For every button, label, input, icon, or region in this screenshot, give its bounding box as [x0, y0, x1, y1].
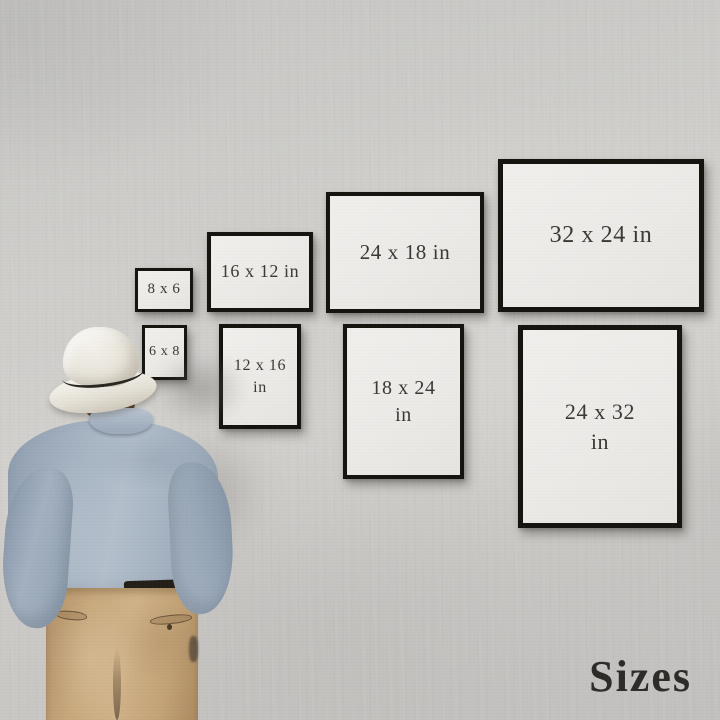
frame-label: 12 x 16 in — [234, 355, 286, 397]
frame-8x6: 8 x 6 — [135, 268, 193, 312]
frame-label-line: 8 x 6 — [148, 280, 181, 300]
frame-label: 32 x 24 in — [550, 220, 653, 252]
frame-label-line: 32 x 24 in — [550, 220, 653, 252]
frame-label-line: 24 x 18 in — [360, 239, 451, 267]
frame-6x8: 6 x 8 — [142, 325, 187, 380]
frame-label: 16 x 12 in — [221, 260, 300, 284]
frame-16x12: 16 x 12 in — [207, 232, 313, 312]
frame-18x24: 18 x 24 in — [343, 324, 464, 479]
frame-label: 18 x 24 in — [371, 375, 435, 428]
frame-label-line: in — [371, 402, 435, 428]
frame-label-line: 16 x 12 in — [221, 260, 300, 284]
frame-12x16: 12 x 16 in — [219, 324, 301, 429]
frame-label: 24 x 18 in — [360, 239, 451, 267]
frame-24x18: 24 x 18 in — [326, 192, 484, 313]
frame-label-line: 24 x 32 — [565, 397, 635, 426]
frame-32x24: 32 x 24 in — [498, 159, 704, 312]
frame-label-line: 6 x 8 — [149, 343, 180, 361]
frame-label-line: 18 x 24 — [371, 375, 435, 401]
frame-label-line: in — [234, 377, 286, 398]
frame-label-line: in — [565, 427, 635, 456]
frame-24x32: 24 x 32 in — [518, 325, 682, 528]
frame-label: 6 x 8 — [149, 343, 180, 361]
sizes-caption: Sizes — [589, 651, 692, 702]
scene: 8 x 6 16 x 12 in 24 x 18 in 32 x 24 in 6… — [0, 0, 720, 720]
frame-label: 24 x 32 in — [565, 397, 635, 455]
frame-label: 8 x 6 — [148, 280, 181, 300]
frame-label-line: 12 x 16 — [234, 355, 286, 376]
